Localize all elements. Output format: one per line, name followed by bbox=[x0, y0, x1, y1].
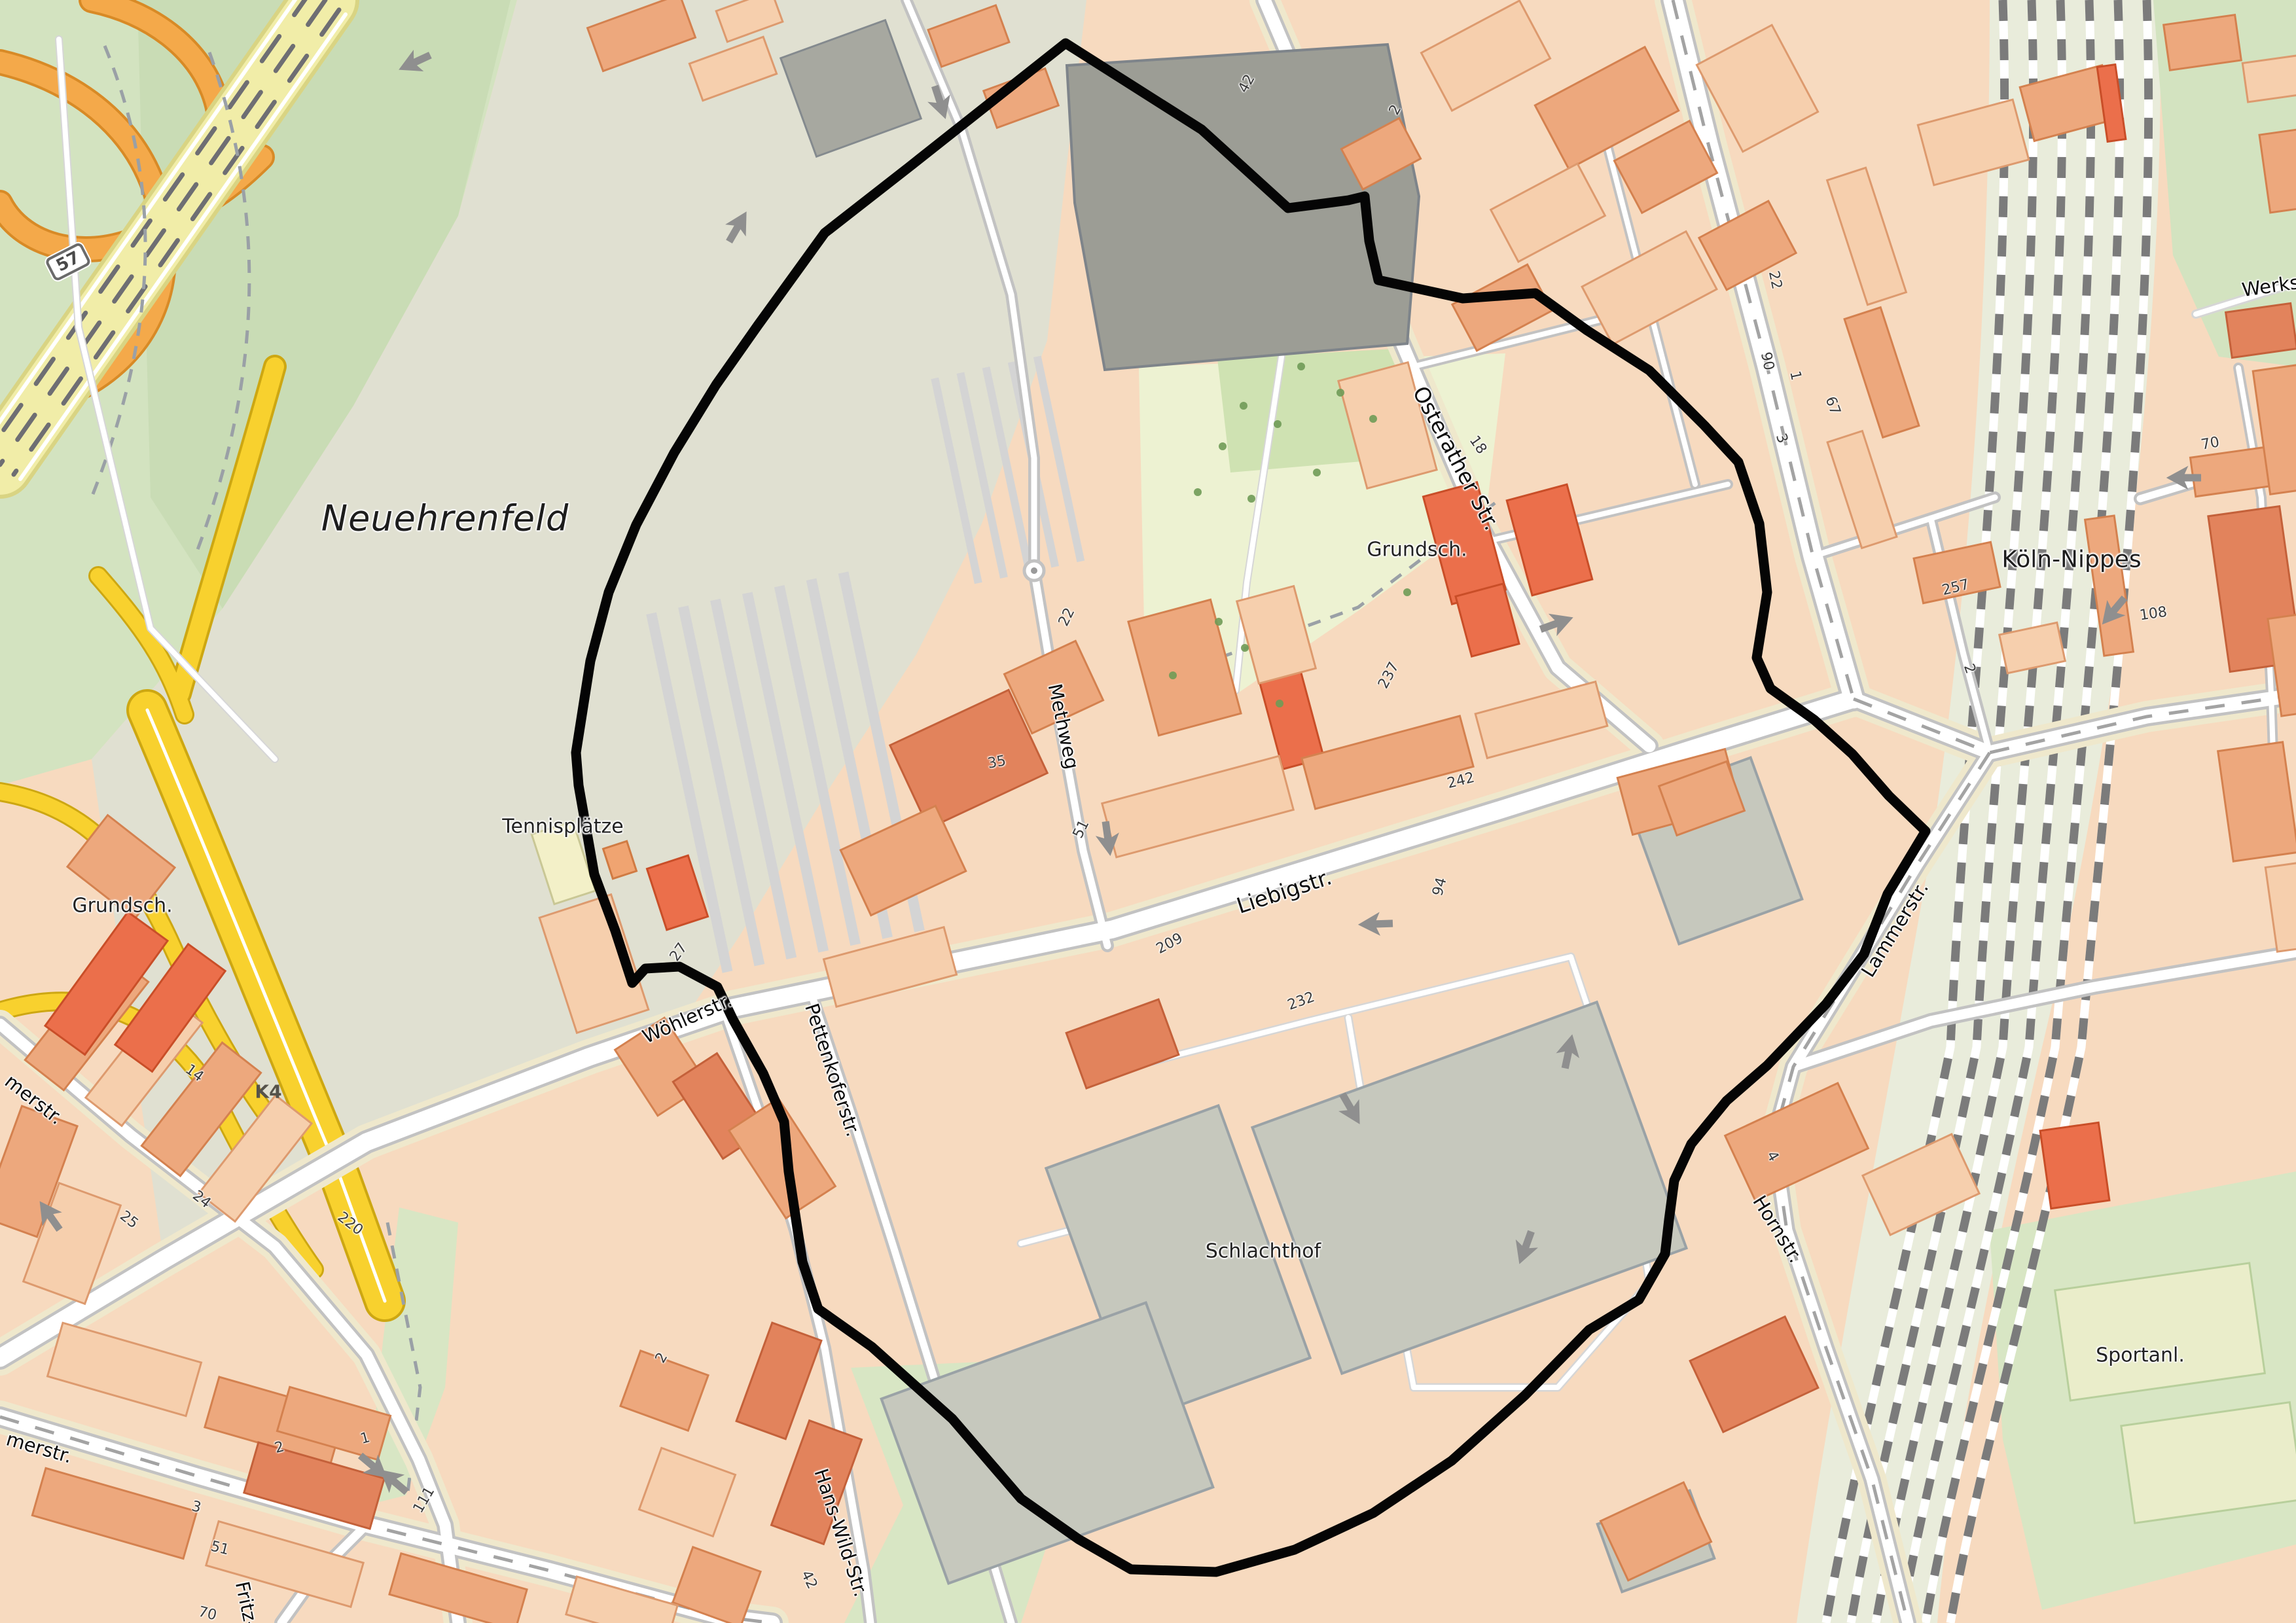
building bbox=[1844, 308, 1919, 438]
one-way-arrow-icon bbox=[1357, 912, 1393, 936]
tree-icon bbox=[1336, 389, 1344, 397]
building bbox=[1102, 756, 1293, 857]
tree-icon bbox=[1313, 469, 1321, 476]
tree-icon bbox=[1403, 588, 1411, 596]
building bbox=[206, 1522, 363, 1607]
building bbox=[2164, 15, 2242, 71]
tree-icon bbox=[1274, 420, 1282, 428]
building bbox=[2265, 861, 2296, 952]
tree-icon bbox=[1169, 671, 1177, 679]
building bbox=[1827, 168, 1907, 304]
tree-icon bbox=[1276, 700, 1283, 707]
building bbox=[824, 927, 957, 1007]
building bbox=[1690, 1317, 1818, 1432]
building bbox=[2040, 1122, 2109, 1208]
building bbox=[1066, 999, 1179, 1088]
building bbox=[2226, 303, 2296, 357]
building bbox=[1827, 431, 1897, 548]
tree-icon bbox=[1247, 495, 1255, 503]
building bbox=[1302, 716, 1473, 809]
building bbox=[2218, 742, 2296, 861]
building bbox=[639, 1448, 736, 1536]
basemap-graphics bbox=[0, 0, 2296, 1623]
map-canvas: Neuehrenfeld Köln-Nippes Tennisplätze Gr… bbox=[0, 0, 2296, 1623]
tree-icon bbox=[1219, 442, 1227, 450]
tree-icon bbox=[1215, 618, 1223, 626]
tree-icon bbox=[1297, 363, 1305, 370]
tree-icon bbox=[1369, 415, 1377, 423]
building bbox=[1475, 682, 1607, 758]
building bbox=[620, 1351, 708, 1431]
road-junction-node bbox=[1024, 561, 1044, 580]
building bbox=[48, 1323, 202, 1416]
tree-icon bbox=[1194, 488, 1202, 496]
building bbox=[2242, 55, 2296, 102]
tree-icon bbox=[1241, 644, 1249, 652]
building bbox=[1491, 164, 1605, 262]
tree-icon bbox=[1240, 402, 1247, 410]
building bbox=[1421, 1, 1550, 111]
